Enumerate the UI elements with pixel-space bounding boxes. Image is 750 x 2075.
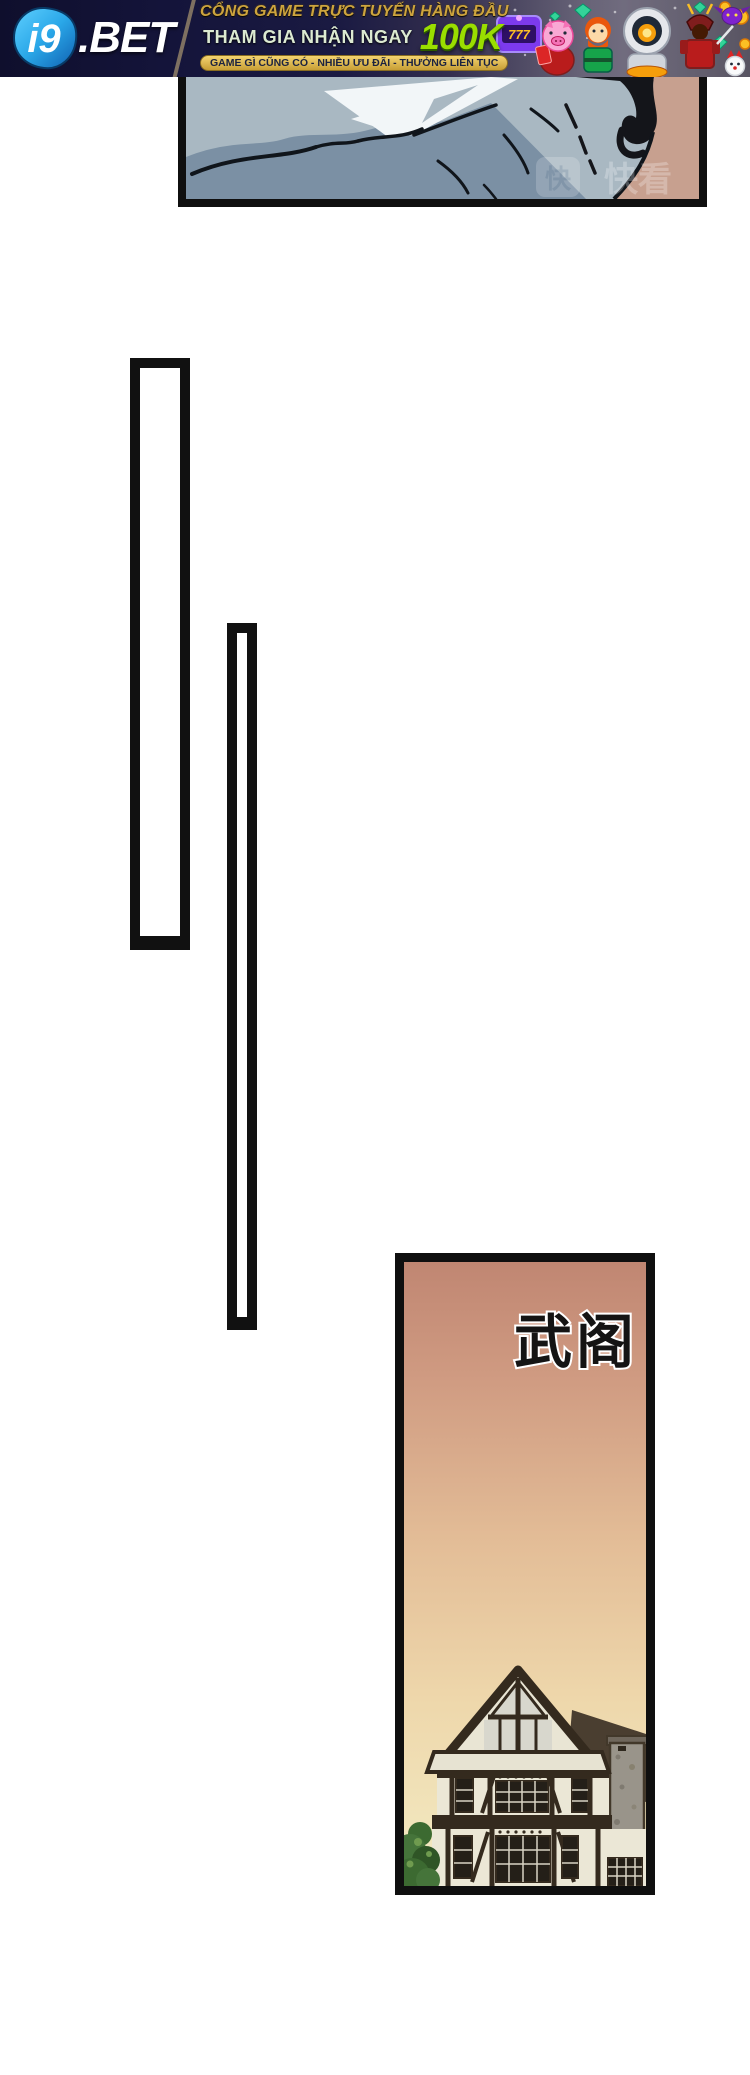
i9bet-logo-mark: i9	[6, 2, 84, 74]
ad-banner[interactable]: i9 .BET CỔNG GAME TRỰC TUYẾN HÀNG ĐẦU TH…	[0, 0, 750, 77]
logo-bet-text: .BET	[78, 13, 174, 63]
ground-floor	[432, 1829, 646, 1886]
svg-text:快看: 快看	[604, 160, 672, 199]
banner-divider-streak	[170, 0, 198, 77]
ground-window-center	[496, 1830, 550, 1882]
ground-window-farright	[608, 1858, 642, 1886]
logo-i9-text: i9	[27, 17, 61, 61]
kuaikan-watermark-icon: 快 快看	[536, 157, 672, 199]
jetty-band	[427, 1752, 609, 1772]
tall-empty-panel-1	[130, 358, 190, 950]
tall-empty-panel-2	[227, 623, 257, 1330]
panel-bottom-artwork: 武阁	[404, 1262, 646, 1886]
banner-text-block[interactable]: CỔNG GAME TRỰC TUYẾN HÀNG ĐẦU THAM GIA N…	[200, 3, 505, 71]
svg-text:快: 快	[545, 165, 572, 195]
astronaut-character-icon	[624, 8, 670, 77]
svg-text:777: 777	[508, 27, 530, 42]
banner-bonus-amount: 100K	[420, 22, 502, 52]
panel-caption: 武阁	[514, 1308, 638, 1376]
upper-window-center	[496, 1775, 548, 1812]
upper-window-left	[456, 1778, 473, 1812]
ground-window-left	[454, 1836, 472, 1878]
panel-top-artwork: 快 快看	[186, 77, 699, 199]
comic-reader-page: i9 .BET CỔNG GAME TRỰC TUYẾN HÀNG ĐẦU TH…	[0, 0, 750, 2075]
banner-casino-art: 777	[495, 0, 750, 77]
ground-window-right	[562, 1836, 578, 1878]
i9bet-logo[interactable]: i9 .BET	[6, 2, 174, 74]
comic-panel-top: 快 快看	[178, 77, 707, 207]
upper-window-right	[572, 1778, 588, 1812]
upper-floor	[432, 1772, 612, 1829]
banner-subline: THAM GIA NHẬN NGAY 100K	[200, 22, 505, 52]
banner-subline-prefix: THAM GIA NHẬN NGAY	[203, 27, 413, 48]
comic-panel-bottom: 武阁	[395, 1253, 655, 1895]
banner-promo-pill[interactable]: GAME GÌ CŨNG CÓ - NHIỀU ƯU ĐÃI - THƯỞNG …	[200, 55, 508, 71]
